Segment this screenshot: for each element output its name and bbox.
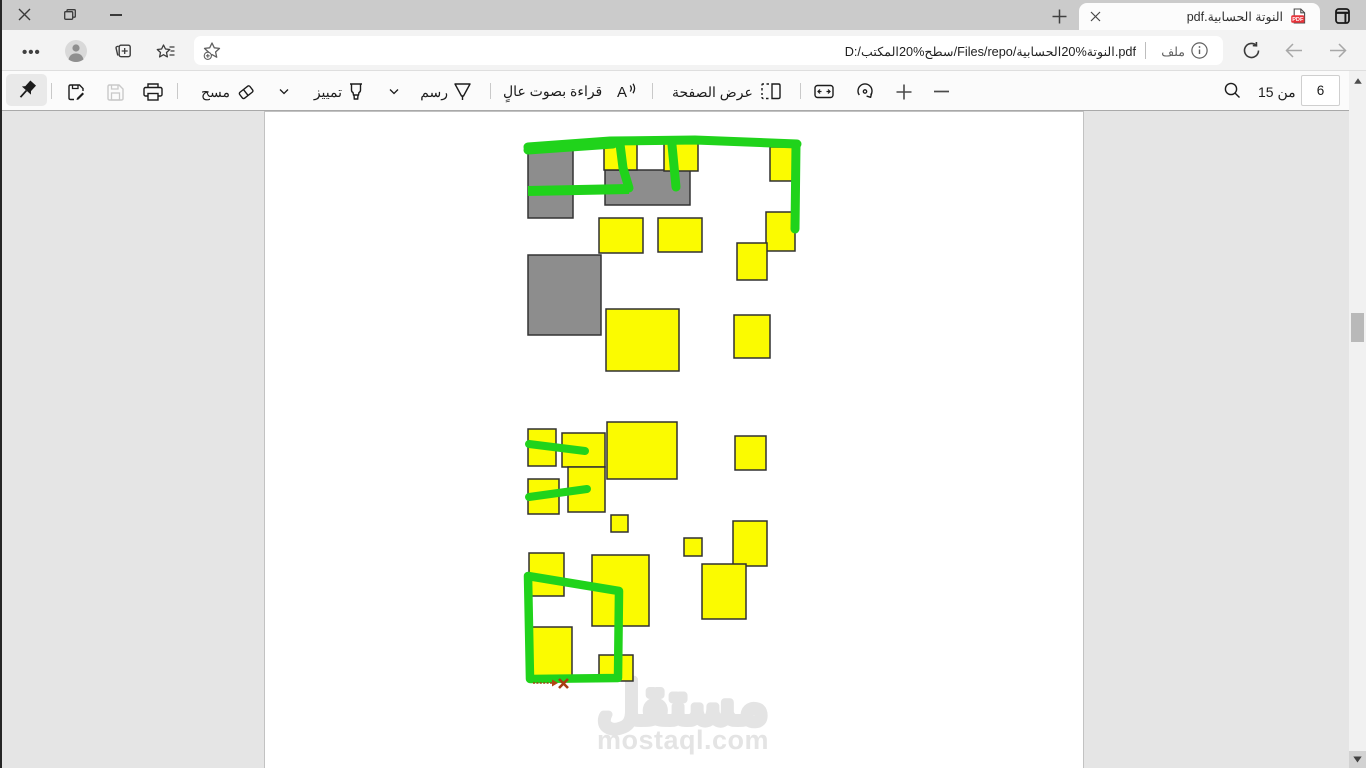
svg-text:A: A [617,84,627,100]
svg-text:PDF: PDF [1292,17,1304,23]
svg-text:mostaql.com: mostaql.com [597,725,769,755]
